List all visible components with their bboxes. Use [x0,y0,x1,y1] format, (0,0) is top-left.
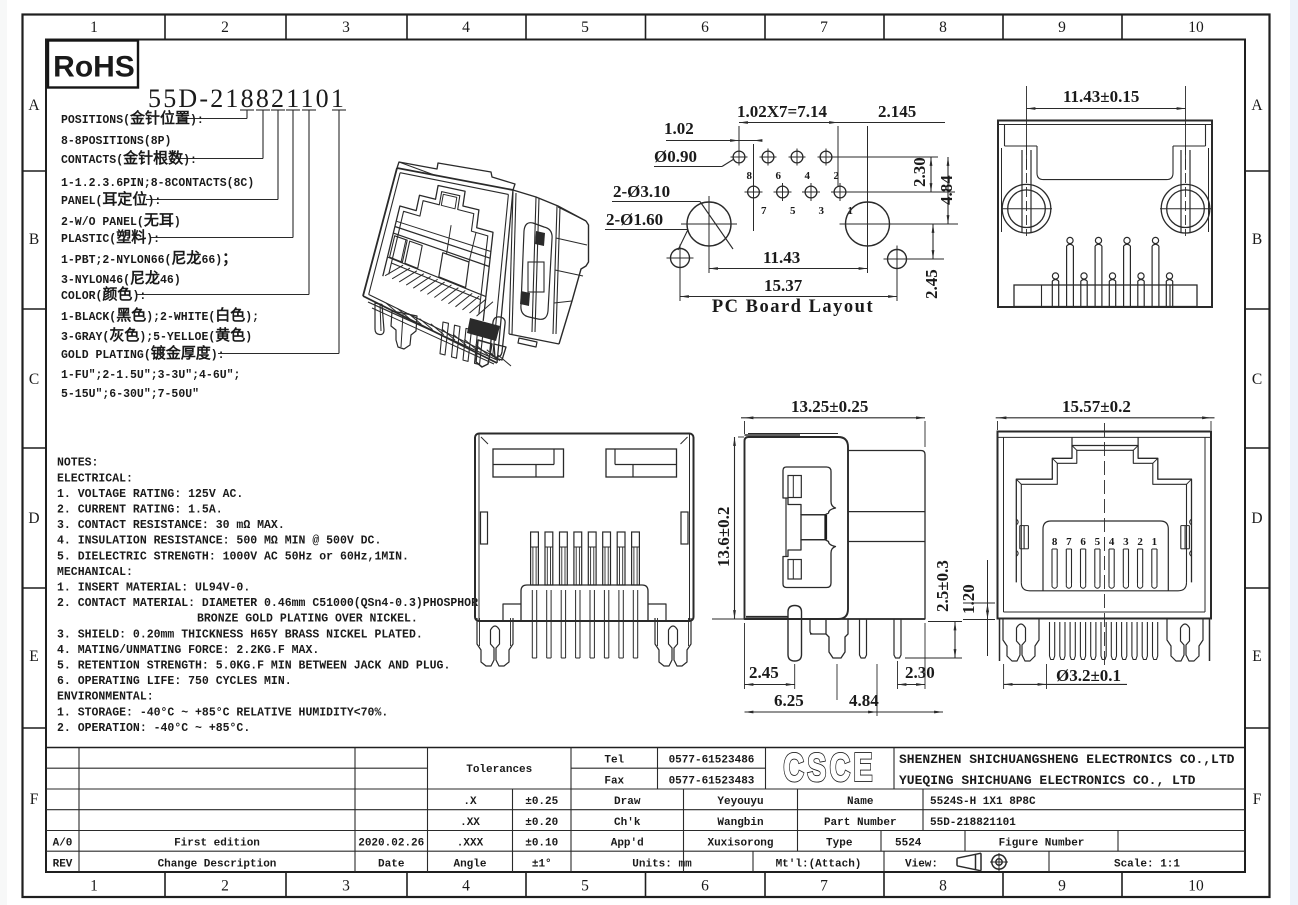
svg-text:B: B [29,231,39,248]
svg-text:10: 10 [1188,19,1204,36]
svg-text:Date: Date [378,859,405,871]
svg-text:Tolerances: Tolerances [466,764,532,776]
svg-text:1. STORAGE: -40°C ~ +85°C REL: 1. STORAGE: -40°C ~ +85°C RELATIVE HUMID… [57,706,388,719]
svg-text:3: 3 [1123,536,1129,548]
svg-text:6.25: 6.25 [774,691,804,710]
svg-text:8: 8 [747,170,753,182]
svg-text:4: 4 [1109,536,1115,548]
svg-text:2.45: 2.45 [749,663,779,682]
svg-text:15.37: 15.37 [764,276,803,295]
svg-text:ENVIRONMENTAL:: ENVIRONMENTAL: [57,691,154,704]
svg-text:5: 5 [581,19,589,36]
svg-text:5. RETENTION STRENGTH: 5.0KG.: 5. RETENTION STRENGTH: 5.0KG.F MIN BETWE… [57,660,450,673]
svg-text:4. MATING/UNMATING FORCE: 2.2: 4. MATING/UNMATING FORCE: 2.2KG.F MAX. [57,644,319,657]
svg-text:F: F [30,791,39,808]
svg-text:4.84: 4.84 [937,175,956,205]
svg-text:.XX: .XX [460,817,480,829]
svg-text:App'd: App'd [611,838,644,850]
svg-text:C: C [1252,371,1262,388]
svg-text:1.02X7=7.14: 1.02X7=7.14 [737,102,827,121]
svg-text:8-8POSITIONS(8P): 8-8POSITIONS(8P) [61,135,171,148]
svg-text:F: F [1253,791,1262,808]
svg-text:Ø3.2±0.1: Ø3.2±0.1 [1056,666,1121,685]
svg-text:2.45: 2.45 [922,269,941,299]
svg-text:1-1.2.3.6PIN;8-8CONTACTS(8C): 1-1.2.3.6PIN;8-8CONTACTS(8C) [61,177,254,190]
svg-text:±1°: ±1° [532,859,552,871]
svg-text:View:: View: [905,859,938,871]
svg-text:4: 4 [462,19,470,36]
svg-text:C: C [29,371,39,388]
svg-text:2-Ø1.60: 2-Ø1.60 [606,210,663,229]
svg-text:7: 7 [820,19,828,36]
svg-text:D: D [1251,510,1262,527]
svg-text:5524S-H 1X1 8P8C: 5524S-H 1X1 8P8C [930,796,1036,808]
svg-text:A: A [1251,97,1263,114]
svg-text:8: 8 [939,878,947,895]
svg-text:0577-61523483: 0577-61523483 [669,776,755,788]
svg-text:E: E [29,648,38,665]
svg-text:3. SHIELD: 0.20mm THICKNESS H: 3. SHIELD: 0.20mm THICKNESS H65Y BRASS N… [57,628,423,641]
svg-text:1: 1 [90,878,98,895]
svg-text:ELECTRICAL:: ELECTRICAL: [57,472,133,485]
svg-text:.X: .X [463,796,477,808]
svg-text:±0.25: ±0.25 [525,796,558,808]
svg-text:YUEQING SHICHUANG ELECTRONICS: YUEQING SHICHUANG ELECTRONICS CO., LTD [899,773,1196,788]
svg-text:2: 2 [834,170,840,182]
svg-text:4: 4 [805,170,811,182]
svg-text:5: 5 [790,205,796,217]
svg-text:11.43±0.15: 11.43±0.15 [1063,87,1139,106]
svg-text:2.30: 2.30 [910,157,929,187]
svg-text:7: 7 [761,205,767,217]
svg-text:1.20: 1.20 [959,584,978,614]
svg-text:6: 6 [701,878,709,895]
svg-text:7: 7 [1066,536,1072,548]
svg-text:6: 6 [1080,536,1086,548]
svg-text:1.02: 1.02 [664,119,694,138]
svg-text:3: 3 [819,205,825,217]
svg-text:PC Board Layout: PC Board Layout [712,297,874,317]
svg-text:NOTES:: NOTES: [57,457,98,470]
svg-text:SHENZHEN SHICHUANGSHENG ELECTR: SHENZHEN SHICHUANGSHENG ELECTRONICS CO.,… [899,752,1235,767]
svg-text:5: 5 [581,878,589,895]
svg-text:15.57±0.2: 15.57±0.2 [1062,397,1131,416]
svg-text:7: 7 [820,878,828,895]
svg-text:Draw: Draw [614,796,641,808]
svg-text:1: 1 [1152,536,1158,548]
svg-text:A: A [28,97,40,114]
svg-text:Xuxisorong: Xuxisorong [707,838,773,850]
svg-text:8: 8 [1052,536,1058,548]
svg-text:2020.02.26: 2020.02.26 [358,838,424,850]
svg-text:D: D [28,510,39,527]
svg-text:3. CONTACT RESISTANCE: 30 mΩ: 3. CONTACT RESISTANCE: 30 mΩ MAX. [57,519,285,532]
svg-text:A/0: A/0 [53,838,73,850]
svg-text:First edition: First edition [174,838,260,850]
svg-text:1: 1 [90,19,98,36]
svg-text:0577-61523486: 0577-61523486 [669,755,755,767]
svg-text:Yeyouyu: Yeyouyu [717,796,763,808]
svg-text:4. INSULATION RESISTANCE: 500: 4. INSULATION RESISTANCE: 500 MΩ MIN @ 5… [57,535,381,548]
svg-text:±0.10: ±0.10 [525,838,558,850]
svg-text:.XXX: .XXX [457,838,484,850]
svg-text:2-Ø3.10: 2-Ø3.10 [613,182,670,201]
svg-text:Units: mm: Units: mm [632,859,692,871]
svg-text:10: 10 [1188,878,1204,895]
svg-text:2: 2 [221,878,229,895]
svg-text:CSCE: CSCE [784,746,876,790]
svg-text:Change Description: Change Description [158,859,277,871]
svg-text:Fax: Fax [604,776,624,788]
svg-text:Angle: Angle [453,859,486,871]
svg-text:±0.20: ±0.20 [525,817,558,829]
svg-text:55D-218821101: 55D-218821101 [148,84,346,113]
svg-text:BRONZE GOLD PLATING OVER NICKE: BRONZE GOLD PLATING OVER NICKEL. [197,613,418,626]
svg-text:RoHS: RoHS [53,51,135,84]
svg-text:Ch'k: Ch'k [614,817,641,829]
svg-text:Type: Type [826,838,853,850]
svg-text:2: 2 [1137,536,1143,548]
svg-text:1-FU";2-1.5U";3-3U";4-6U";: 1-FU";2-1.5U";3-3U";4-6U"; [61,369,240,382]
svg-text:2. CURRENT RATING: 1.5A.: 2. CURRENT RATING: 1.5A. [57,504,223,517]
svg-text:13.25±0.25: 13.25±0.25 [791,397,868,416]
svg-text:9: 9 [1058,878,1066,895]
svg-text:Scale: 1:1: Scale: 1:1 [1114,859,1180,871]
svg-text:2. OPERATION: -40°C ~ +85°C.: 2. OPERATION: -40°C ~ +85°C. [57,722,250,735]
svg-text:B: B [1252,231,1262,248]
svg-text:Mt'l:(Attach): Mt'l:(Attach) [776,859,862,871]
svg-text:Ø0.90: Ø0.90 [654,147,697,166]
svg-text:13.6±0.2: 13.6±0.2 [714,507,733,567]
svg-text:1. INSERT MATERIAL: UL94V-0.: 1. INSERT MATERIAL: UL94V-0. [57,582,250,595]
svg-text:Name: Name [847,796,874,808]
svg-text:MECHANICAL:: MECHANICAL: [57,566,133,579]
svg-text:55D-218821101: 55D-218821101 [930,817,1016,829]
svg-text:3: 3 [342,19,350,36]
svg-text:REV: REV [53,859,73,871]
svg-text:11.43: 11.43 [763,248,800,267]
svg-text:Part Number: Part Number [824,817,897,829]
svg-text:6: 6 [701,19,709,36]
svg-text:1. VOLTAGE RATING: 125V AC.: 1. VOLTAGE RATING: 125V AC. [57,488,243,501]
svg-text:Wangbin: Wangbin [717,817,763,829]
svg-text:6: 6 [776,170,782,182]
svg-text:5-15U";6-30U";7-50U": 5-15U";6-30U";7-50U" [61,388,199,401]
svg-text:5: 5 [1095,536,1101,548]
svg-text:5524: 5524 [895,838,922,850]
svg-text:9: 9 [1058,19,1066,36]
svg-text:2.145: 2.145 [878,102,916,121]
svg-text:2.5±0.3: 2.5±0.3 [933,560,952,612]
svg-text:E: E [1252,648,1261,665]
svg-text:2: 2 [221,19,229,36]
svg-text:2. CONTACT MATERIAL: DIAMETER: 2. CONTACT MATERIAL: DIAMETER 0.46mm C51… [57,597,478,610]
svg-text:8: 8 [939,19,947,36]
svg-text:4: 4 [462,878,470,895]
svg-text:Tel: Tel [604,755,624,767]
svg-text:Figure Number: Figure Number [999,838,1085,850]
svg-text:6. OPERATING LIFE: 750 CYCLES: 6. OPERATING LIFE: 750 CYCLES MIN. [57,675,292,688]
svg-text:5. DIELECTRIC STRENGTH: 1000V: 5. DIELECTRIC STRENGTH: 1000V AC 50Hz or… [57,550,409,563]
svg-text:3: 3 [342,878,350,895]
svg-text:4.84: 4.84 [849,691,879,710]
svg-text:2.30: 2.30 [905,663,935,682]
